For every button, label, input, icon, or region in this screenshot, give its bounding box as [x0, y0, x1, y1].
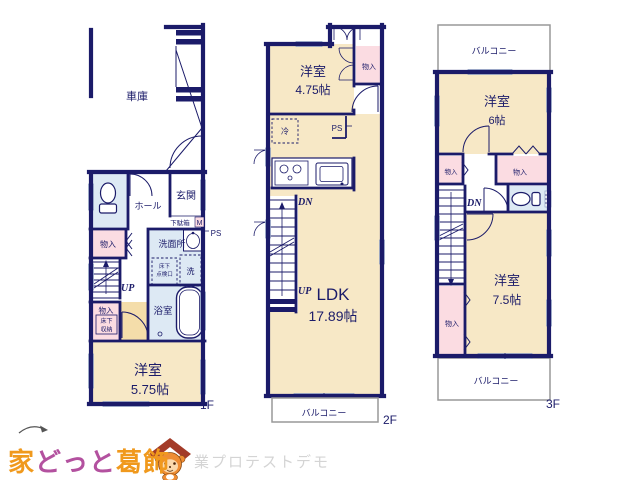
stairs-up-icon [92, 260, 120, 298]
logo-iedotto-katsushika: 家どっと葛飾 [8, 442, 170, 479]
north-arrow-icon [19, 426, 48, 434]
ps-label-2f: PS [332, 124, 343, 133]
closet-a-label: 物入 [100, 239, 116, 249]
door-arc [352, 86, 378, 112]
room-bedroom-2f [270, 44, 354, 114]
kitchen-counter-icon [272, 158, 352, 188]
bedroom-1f-size: 5.75帖 [131, 382, 169, 397]
balcony-3f-top-label: バルコニー [472, 46, 517, 56]
logo-text-part1: 家 [8, 447, 35, 477]
floor-label-3f: 3F [546, 397, 560, 411]
floor-plan-3f: バルコニー 洋室 6帖 物入 物入 DN 洋室 7.5帖 物入 バルコニー 3F [435, 25, 561, 411]
balcony-3f-bottom-label: バルコニー [474, 376, 519, 386]
door-arc [130, 174, 152, 196]
washroom-label: 洗面所 [158, 238, 185, 249]
bedroom-3f-a-label: 洋室 [484, 94, 510, 109]
closet-3f-b-label: 物入 [513, 168, 527, 177]
hatch-label-1: 床下 [159, 262, 171, 270]
room-bedroom-3f-a [439, 74, 547, 154]
up-label-2f: UP [298, 286, 312, 297]
bedroom-2f-size: 4.75帖 [295, 82, 330, 97]
bathroom-label: 浴室 [153, 305, 172, 317]
hall-label: ホール [134, 201, 161, 211]
dn-label-2f: DN [297, 197, 313, 208]
ps-label-1f: PS [211, 229, 222, 238]
watermark-text: 業プロテストデモ [194, 451, 330, 472]
hatch-label-2: 点検口 [156, 270, 173, 278]
entrance-label: 玄関 [176, 189, 196, 202]
balcony-2f-label: バルコニー [302, 408, 347, 418]
logo-text-part3: 葛飾 [116, 447, 170, 477]
door-arc [484, 188, 508, 212]
closet-3f-c-label: 物入 [445, 319, 459, 328]
bedroom-3f-b-label: 洋室 [494, 273, 520, 288]
storage-label-1: 床下 [100, 317, 112, 325]
bedroom-3f-a-size: 6帖 [488, 114, 505, 127]
floor-plan-2f: 洋室 4.75帖 物入 冷 PS DN UP LDK 17.89帖 バルコニー … [254, 25, 397, 427]
shoe-box-label: 下駄箱 [170, 218, 190, 227]
ldk-size: 17.89帖 [308, 308, 357, 324]
toilet-icon-3f [512, 193, 540, 206]
bedroom-3f-b-size: 7.5帖 [493, 292, 522, 307]
bedroom-2f-label: 洋室 [300, 64, 326, 79]
stairs-3f-icon [437, 190, 465, 286]
bedroom-door-area [120, 302, 148, 341]
shoe-box-tag-label: M [197, 220, 203, 227]
door-arc [170, 136, 202, 168]
storage-label-2: 収納 [100, 326, 112, 334]
toilet-icon [100, 183, 117, 213]
sink-icon [184, 230, 203, 251]
garage-label: 車庫 [126, 89, 148, 103]
washer-label: 洗 [187, 266, 195, 276]
fridge-label: 冷 [281, 126, 289, 136]
closet-2f-label: 物入 [362, 62, 376, 71]
floor-label-1f: 1F [200, 398, 214, 412]
ldk-label: LDK [316, 285, 350, 304]
dn-label-3f: DN [466, 198, 482, 209]
floorplan-image: 車庫 玄関 ホール 下駄箱 M 洗面所 床下 点検口 洗 PS 物入 UP 物入… [0, 0, 640, 480]
floor-plan-1f: 車庫 玄関 ホール 下駄箱 M 洗面所 床下 点検口 洗 PS 物入 UP 物入… [89, 25, 222, 412]
logo-text-part2: どっと [35, 447, 116, 477]
closet-3f-a-label: 物入 [445, 167, 459, 176]
bedroom-1f-label: 洋室 [134, 362, 162, 378]
up-label-1f: UP [121, 283, 135, 294]
closet-b-label: 物入 [99, 305, 114, 315]
floor-label-2f: 2F [383, 413, 397, 427]
